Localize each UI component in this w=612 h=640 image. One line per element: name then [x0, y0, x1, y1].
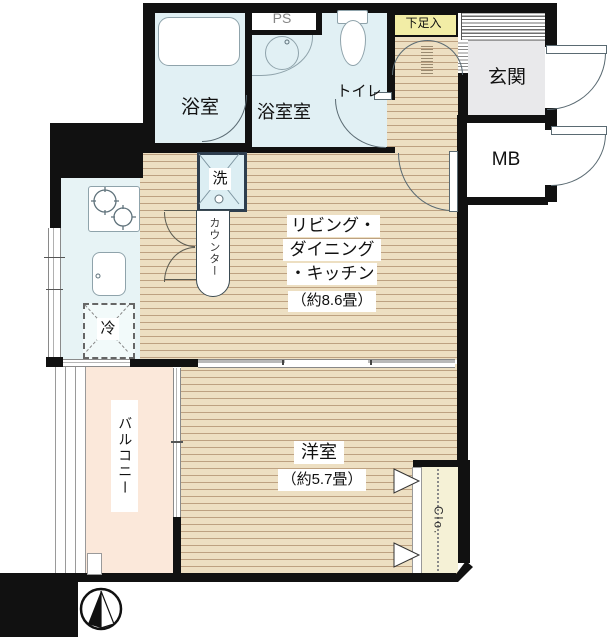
wall-washroom-bottom [252, 147, 395, 153]
entrance-door-arc [547, 53, 606, 110]
wall-ldk-right [457, 202, 468, 367]
partition-tick [370, 360, 372, 365]
ldk-label-line3: ・キッチン [287, 263, 377, 285]
wall-mb-left [457, 123, 467, 202]
bathroom-label: 浴室 [168, 96, 232, 120]
wall-block-left [50, 123, 143, 178]
partition-tick [282, 360, 284, 365]
bathtub [158, 17, 240, 66]
wall-partition-stub-left [130, 359, 198, 367]
wall-bottom-block [0, 582, 78, 637]
wall-bath-washroom [245, 3, 252, 153]
meter-box-label: MB [488, 148, 524, 172]
wall-closet-top [413, 460, 470, 467]
ldk-label-line1: リビング・ [287, 215, 380, 237]
wall-right-top [545, 3, 557, 47]
balcony-drain-notch [87, 553, 102, 575]
western-size-label: （約5.7畳） [278, 469, 366, 491]
wall-western-right [457, 367, 468, 463]
partition-panel [368, 360, 455, 363]
ldk-western-sliding-partition [198, 359, 455, 368]
porch-hatch-area [461, 10, 546, 40]
toilet-label: トイレ [330, 83, 388, 101]
shoe-cabinet-label: 下足入 [395, 15, 452, 31]
kitchen-balcony-window [62, 359, 130, 367]
fridge-label: 冷 [97, 318, 119, 340]
kitchen-door-bottom-line [164, 279, 196, 280]
window-tick [46, 289, 63, 290]
counter-label: カウンター [197, 217, 229, 277]
wall-mb-bottom [457, 197, 548, 205]
window-tick [44, 257, 65, 258]
balcony-railing [46, 367, 86, 573]
closet-label: Clo. [425, 498, 451, 544]
ldk-size-label: （約8.6畳） [288, 291, 376, 312]
closet-door-strip [412, 467, 422, 575]
ps-label: PS [252, 10, 312, 28]
wall-left-stub [46, 357, 63, 367]
kitchen-counter: カウンター [196, 210, 230, 297]
washer-label: 洗 [209, 168, 231, 190]
wall-left-strip [50, 178, 61, 228]
wall-washroom-right [387, 3, 395, 100]
wall-entrance-mb [457, 115, 548, 123]
mb-door-arc [551, 134, 606, 186]
balcony-label: バルコニー [111, 400, 138, 512]
stove [88, 186, 140, 232]
partition-panel [198, 360, 285, 363]
kitchen-door-top-line [164, 210, 196, 211]
wall-western-window-lower [173, 517, 181, 573]
compass-icon [81, 589, 121, 629]
shoe-cabinet-door-fold-lines [421, 44, 433, 74]
wall-closet-right [458, 467, 470, 563]
western-room-label: 洋室 [294, 441, 344, 464]
ldk-label-line2: ダイニング [283, 239, 381, 261]
washroom-label: 浴室室 [253, 100, 315, 124]
ldk-door-leaf [449, 151, 458, 212]
kitchen-sink [92, 252, 126, 296]
washbasin-bowl [265, 36, 299, 70]
kitchen-left-window [48, 228, 61, 357]
wall-left-upper [143, 3, 155, 145]
entrance-label: 玄関 [484, 66, 530, 90]
wall-right-stub-low [545, 185, 557, 202]
wall-bottom-band [0, 573, 456, 582]
window-tick [171, 441, 183, 443]
floor-plan: カウンター [0, 0, 612, 640]
